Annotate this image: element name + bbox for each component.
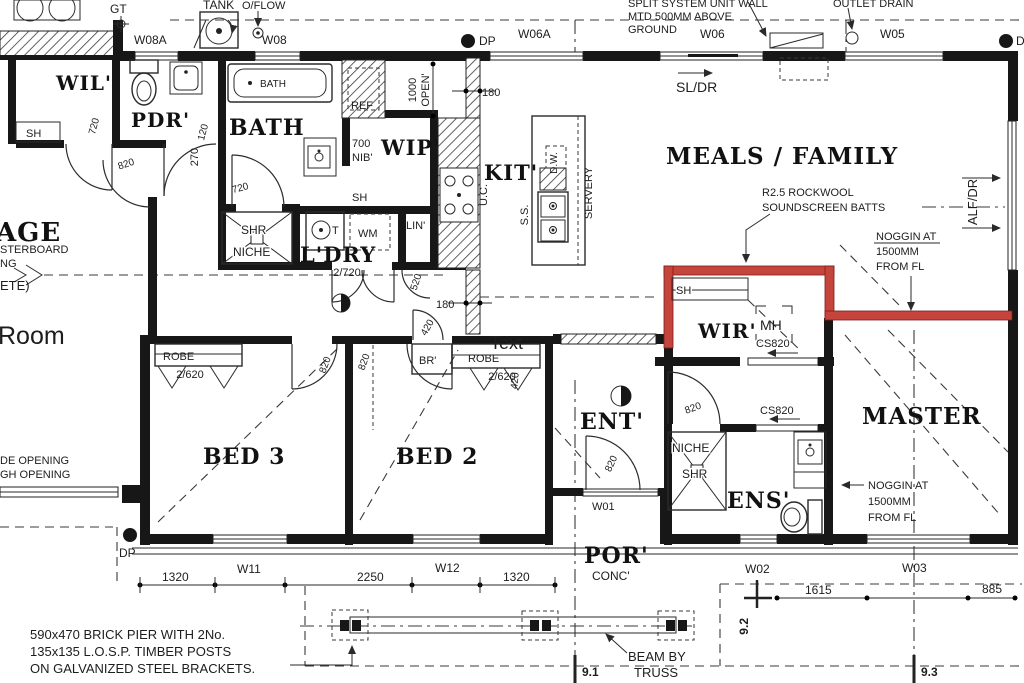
noggin1-line3: FROM FL: [876, 261, 924, 273]
dim-720-bath: 720: [231, 181, 250, 196]
dim-820-ens: 820: [683, 400, 703, 416]
floor-plan-canvas: WIL' PDR' BATH WIP' KIT' MEALS / FAMILY …: [0, 0, 1024, 683]
room-label-pdr: PDR': [131, 108, 190, 132]
ens-niche-label: NICHE: [672, 441, 709, 455]
window-w01: [583, 489, 658, 496]
pdr-toilet-icon: [130, 60, 158, 105]
plaster-note-3: ETE): [0, 278, 30, 293]
smoke-alarm-icon: [332, 294, 350, 312]
ss-label: S.S.: [519, 205, 531, 226]
downpipe-icon: [123, 528, 137, 542]
floor-plan-drawing: WIL' PDR' BATH WIP' KIT' MEALS / FAMILY …: [0, 0, 1024, 683]
downpipe-icon: [461, 34, 475, 48]
dim-2-620-bed3: 2/620: [176, 369, 204, 381]
window-w12: [413, 535, 480, 543]
noggin2-line1: NOGGIN AT: [868, 480, 929, 492]
window-label-w06: W06: [700, 27, 725, 41]
dim-820-ent: 820: [603, 454, 620, 474]
plaster-note-2: NG: [0, 258, 17, 270]
dim-180-top: 180: [482, 87, 500, 99]
tank-label: TANK: [203, 0, 234, 12]
window-label-w06a: W06A: [518, 27, 551, 41]
room-label-bed3: BED 3: [203, 444, 285, 470]
window-alfresco-door: [1008, 121, 1016, 270]
dw-label: D.W.: [549, 152, 560, 174]
tub-label: BATH: [260, 79, 286, 90]
dp-label-bottom: DP: [119, 546, 136, 560]
oflow-label: O/FLOW: [242, 0, 286, 12]
room-label-bed2: BED 2: [396, 444, 478, 470]
island-bench-icon: [532, 116, 585, 265]
br-label: BR': [419, 355, 436, 367]
dim-1320-right: 1320: [503, 570, 530, 584]
text-annotation[interactable]: Text: [490, 333, 523, 353]
gt-label: GT: [110, 2, 127, 16]
robe-bed2-label: ROBE: [468, 353, 499, 365]
kitchen-bench-icon: [438, 118, 480, 268]
dim-420-br: 420: [419, 317, 437, 337]
dim-820-hall: 820: [117, 157, 137, 173]
robe-bed3-label: ROBE: [163, 351, 194, 363]
window-label-w05: W05: [880, 27, 905, 41]
room-label-meals: MEALS / FAMILY: [666, 143, 898, 170]
rockwool-note-2: SOUNDSCREEN BATTS: [762, 202, 885, 214]
sh-label-wir: SH: [676, 285, 691, 297]
ens-shr-label: SHR: [682, 467, 708, 481]
window-label-w08: W08: [262, 33, 287, 47]
room-label-bath: BATH: [229, 115, 305, 141]
pier-note-2: 135x135 L.O.S.P. TIMBER POSTS: [30, 644, 231, 659]
window-label-w01: W01: [592, 501, 615, 513]
section-9-2: 9.2: [737, 618, 751, 635]
plaster-note-1: STERBOARD: [0, 244, 69, 256]
shr-label: SHR: [241, 223, 267, 237]
dp-label-top: DP: [479, 34, 496, 48]
dim-180-mid: 180: [436, 299, 454, 311]
window-w11: [213, 535, 287, 543]
room-label-ent: ENT': [580, 409, 644, 435]
window-w06a: [490, 52, 583, 60]
niche-label: NICHE: [233, 245, 270, 259]
room-label-ldry: L'DRY: [300, 242, 376, 267]
outlet-drain-label: OUTLET DRAIN: [833, 0, 914, 10]
room-label-master: MASTER: [862, 403, 982, 430]
hot-water-tank-icon: [194, 12, 238, 48]
dim-2250: 2250: [357, 570, 384, 584]
opening-note-2: GH OPENING: [0, 469, 70, 481]
room-label-wir: WIR': [697, 319, 757, 343]
sl-dr-label: SL/DR: [676, 79, 717, 95]
wm-label: WM: [358, 228, 378, 240]
outlet-drain-icon: [846, 8, 858, 44]
section-9-3: 9.3: [921, 665, 938, 679]
ref-label: REF: [351, 100, 373, 112]
servery-label: SERVERY: [583, 166, 595, 219]
window-w02: [740, 535, 777, 543]
pdr-basin-icon: [170, 62, 202, 94]
downpipe-icon: [999, 34, 1013, 48]
noggin1-line1: NOGGIN AT: [876, 231, 937, 243]
pier-note-3: ON GALVANIZED STEEL BRACKETS.: [30, 661, 255, 676]
window-label-w08a: W08A: [134, 33, 167, 47]
window-label-w03: W03: [902, 561, 927, 575]
sh-label-wil: SH: [26, 128, 41, 140]
ens-vanity-icon: [794, 432, 826, 488]
dim-1000: 1000: [407, 78, 419, 102]
dim-open: OPEN': [420, 73, 432, 106]
dim-120-pdr: 120: [196, 122, 211, 141]
section-9-1: 9.1: [582, 665, 599, 679]
beam-note-1: BEAM BY: [628, 649, 686, 664]
room-label-kit: KIT': [484, 160, 538, 185]
dim-700: 700: [352, 138, 370, 150]
dim-820-bed2: 820: [357, 352, 373, 372]
door-swings: [66, 144, 720, 490]
cs820-wir-label: CS820: [756, 338, 790, 350]
fixtures: [14, 0, 1013, 542]
dim-885: 885: [982, 582, 1002, 596]
room-label-ens: ENS': [727, 488, 791, 514]
smoke-alarm-icon: [611, 386, 631, 406]
split-note-1: SPLIT SYSTEM UNIT WALL: [628, 0, 768, 10]
sh-label-wip: SH: [352, 192, 367, 204]
room-label-wil: WIL': [55, 71, 112, 95]
split-note-2: MTD 500MM ABOVE: [628, 11, 732, 23]
dim-nib: NIB': [352, 152, 372, 164]
pier-note-1: 590x470 BRICK PIER WITH 2No.: [30, 627, 225, 642]
noggin2-line3: FROM FL: [868, 512, 916, 524]
dim-2-720: 2/720: [333, 267, 361, 279]
window-garage: [0, 487, 118, 497]
window-w05: [845, 52, 943, 60]
room-label-room-cut: Room: [0, 322, 65, 350]
dim-2-620-bed2: 2/620: [488, 371, 516, 383]
window-label-w12: W12: [435, 561, 460, 575]
mh-label: MH: [760, 317, 782, 333]
por-floor-label: CONC': [592, 569, 630, 583]
window-label-w02: W02: [745, 562, 770, 576]
opening-note-1: DE OPENING: [0, 455, 69, 467]
window-w03: [867, 535, 970, 543]
dp-label-topright: DP: [1016, 34, 1024, 48]
dim-270-pdr: 270: [189, 148, 201, 166]
lin-label: LIN': [406, 220, 425, 232]
dim-1320-left: 1320: [162, 570, 189, 584]
split-note-3: GROUND: [628, 24, 677, 36]
dim-820-bed3: 820: [318, 355, 334, 375]
window-w08: [255, 52, 300, 60]
trough-label: T: [332, 225, 339, 237]
rockwool-note-1: R2.5 ROCKWOOL: [762, 187, 854, 199]
dim-1615: 1615: [805, 583, 832, 597]
bath-vanity-icon: [304, 138, 336, 176]
noggin1-line2: 1500MM: [876, 246, 919, 258]
noggin2-line2: 1500MM: [868, 496, 911, 508]
beam-note-2: TRUSS: [634, 665, 678, 680]
window-w06: [660, 52, 763, 60]
split-system-unit-icon: [748, 2, 828, 80]
room-label-por: POR': [584, 543, 649, 569]
room-label-wip: WIP': [380, 135, 441, 160]
window-label-w11: W11: [237, 562, 261, 576]
water-tanks-icon: [14, 0, 80, 21]
dim-720-wil: 720: [87, 116, 102, 135]
cs820-ens-label: CS820: [760, 405, 794, 417]
uc-label: U.C.: [478, 184, 490, 206]
alf-dr-label: ALF/DR: [965, 179, 980, 225]
window-w08a: [135, 52, 178, 60]
